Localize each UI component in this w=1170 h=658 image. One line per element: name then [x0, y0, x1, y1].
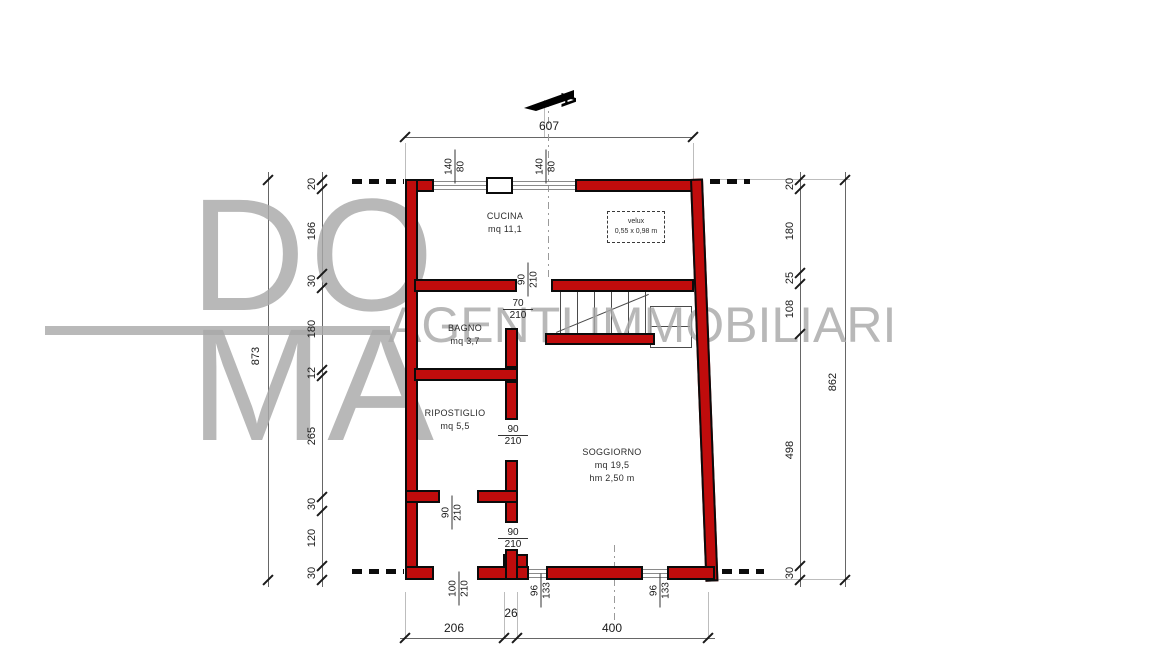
wall-bagno-ripostiglio [414, 368, 518, 381]
wall-bagno-east [505, 328, 518, 368]
dim-right-2: 25 [783, 261, 797, 295]
dim-line-right-chain [800, 172, 801, 587]
wall-corridoio-north-2 [477, 490, 518, 503]
opening-dim-door-cucina: 90210 [517, 263, 540, 297]
wall-bottom-4 [667, 566, 715, 580]
dim-line-bottom [400, 638, 715, 639]
wall-corridoio-north-1 [405, 490, 440, 503]
dim-left-6: 30 [305, 487, 319, 521]
dim-left-4: 12 [305, 356, 319, 390]
dim-right-total: 862 [826, 365, 840, 399]
axis-line [614, 545, 615, 623]
dim-left-total: 873 [249, 339, 263, 373]
opening-dim-window-bottom-1: 96133 [530, 574, 553, 608]
wall-cucina-south-left [414, 279, 517, 292]
opening-dim-window-top-2: 14080 [535, 150, 558, 184]
dashed-wall-bottom-left [352, 569, 404, 574]
dim-bottom-a: 206 [434, 622, 474, 635]
dim-bottom-b: 26 [494, 607, 528, 620]
section-marker-label: A [556, 92, 580, 107]
dim-bottom-c: 400 [592, 622, 632, 635]
floor-plan: DO MA AGENTI IMMOBILIARI A 607 206 26 40… [0, 0, 1170, 658]
velux-box: velux0,55 x 0,98 m [607, 211, 665, 243]
window-pillar [486, 177, 513, 194]
wall-bottom-1 [405, 566, 434, 580]
wall-right-slanted [690, 179, 718, 582]
opening-dim-window-top-1: 14080 [444, 150, 467, 184]
dashed-wall-top-left [352, 179, 404, 184]
dim-line-right-total [845, 172, 846, 587]
room-label-ripostiglio: RIPOSTIGLIOmq 5,5 [415, 407, 495, 433]
dim-left-3: 180 [305, 312, 319, 346]
wall-corridoio-east-stub [505, 549, 518, 580]
dim-right-5: 30 [783, 556, 797, 590]
dim-left-5: 265 [305, 419, 319, 453]
wall-bottom-3 [546, 566, 643, 580]
wall-bottom-2 [477, 566, 529, 580]
dashed-wall-top-right [710, 179, 750, 184]
opening-dim-door-bagno: 70210 [503, 298, 533, 321]
dim-left-7: 120 [305, 521, 319, 555]
wall-cucina-south-right [551, 279, 694, 292]
room-label-cucina: CUCINAmq 11,1 [465, 210, 545, 236]
dim-line-top [405, 137, 693, 138]
room-label-bagno: BAGNOmq 3,7 [435, 322, 495, 348]
dim-left-2: 30 [305, 264, 319, 298]
dim-left-8: 30 [305, 556, 319, 590]
opening-dim-door-ingresso: 100210 [448, 572, 471, 606]
dim-top: 607 [529, 120, 569, 133]
dashed-wall-bottom-right [722, 569, 764, 574]
opening-dim-door-soggiorno: 90210 [498, 527, 528, 550]
dim-left-1: 186 [305, 214, 319, 248]
dim-left-0: 20 [305, 167, 319, 201]
opening-dim-door-ripostiglio: 90210 [498, 424, 528, 447]
room-label-soggiorno: SOGGIORNOmq 19,5hm 2,50 m [572, 446, 652, 485]
dim-right-1: 180 [783, 214, 797, 248]
opening-dim-window-bottom-2: 96133 [649, 574, 672, 608]
wall-top-right [575, 179, 701, 192]
dim-right-3: 108 [783, 292, 797, 326]
dim-right-4: 498 [783, 433, 797, 467]
opening-dim-door-corridoio: 90210 [441, 496, 464, 530]
dim-right-0: 20 [783, 167, 797, 201]
wall-ripostiglio-east-1 [505, 381, 518, 420]
wall-stair-south [545, 333, 655, 345]
